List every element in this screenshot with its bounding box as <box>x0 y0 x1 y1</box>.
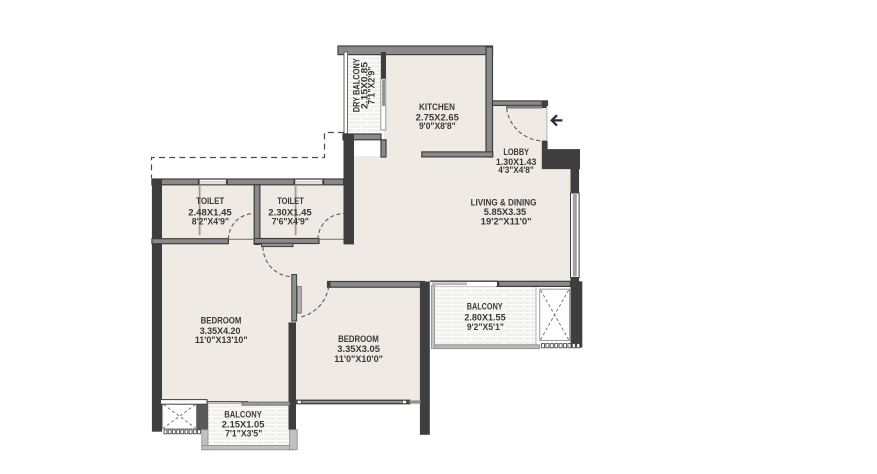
svg-text:8'2"X4'9": 8'2"X4'9" <box>192 217 229 227</box>
svg-text:5.85X3.35: 5.85X3.35 <box>484 207 527 217</box>
svg-text:BALCONY: BALCONY <box>467 302 503 312</box>
svg-text:11'0"X10'0": 11'0"X10'0" <box>334 354 383 364</box>
svg-text:11'0"X13'10": 11'0"X13'10" <box>195 335 248 345</box>
svg-text:KITCHEN: KITCHEN <box>419 102 455 112</box>
svg-text:BALCONY: BALCONY <box>224 410 262 420</box>
svg-text:9'0"X8'8": 9'0"X8'8" <box>419 121 456 131</box>
svg-text:7'6"X4'9": 7'6"X4'9" <box>272 217 309 227</box>
svg-text:4'3"X4'8": 4'3"X4'8" <box>498 165 534 175</box>
svg-text:TOILET: TOILET <box>196 196 225 206</box>
svg-text:BEDROOM: BEDROOM <box>338 334 379 344</box>
svg-text:9'2"X5'1": 9'2"X5'1" <box>467 322 504 332</box>
svg-text:LOBBY: LOBBY <box>503 147 529 157</box>
svg-text:BEDROOM: BEDROOM <box>201 316 242 326</box>
svg-text:19'2"X11'0": 19'2"X11'0" <box>481 217 532 227</box>
svg-text:LIVING & DINING: LIVING & DINING <box>471 197 537 207</box>
svg-text:7'1"X3'5": 7'1"X3'5" <box>225 429 262 439</box>
svg-text:TOILET: TOILET <box>277 196 304 206</box>
svg-text:3.35X3.05: 3.35X3.05 <box>337 344 380 354</box>
svg-text:7'1"X2'9": 7'1"X2'9" <box>367 67 377 105</box>
